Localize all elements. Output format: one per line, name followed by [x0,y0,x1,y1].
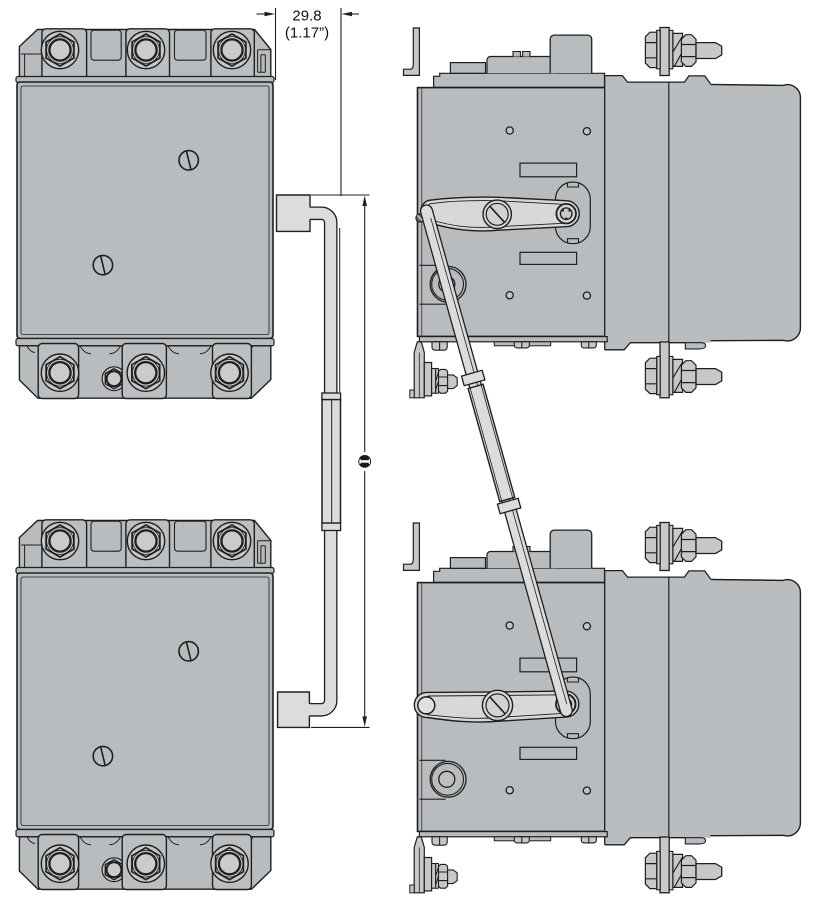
svg-text:29.8: 29.8 [292,8,321,25]
svg-text:(1.17”): (1.17”) [285,25,329,42]
